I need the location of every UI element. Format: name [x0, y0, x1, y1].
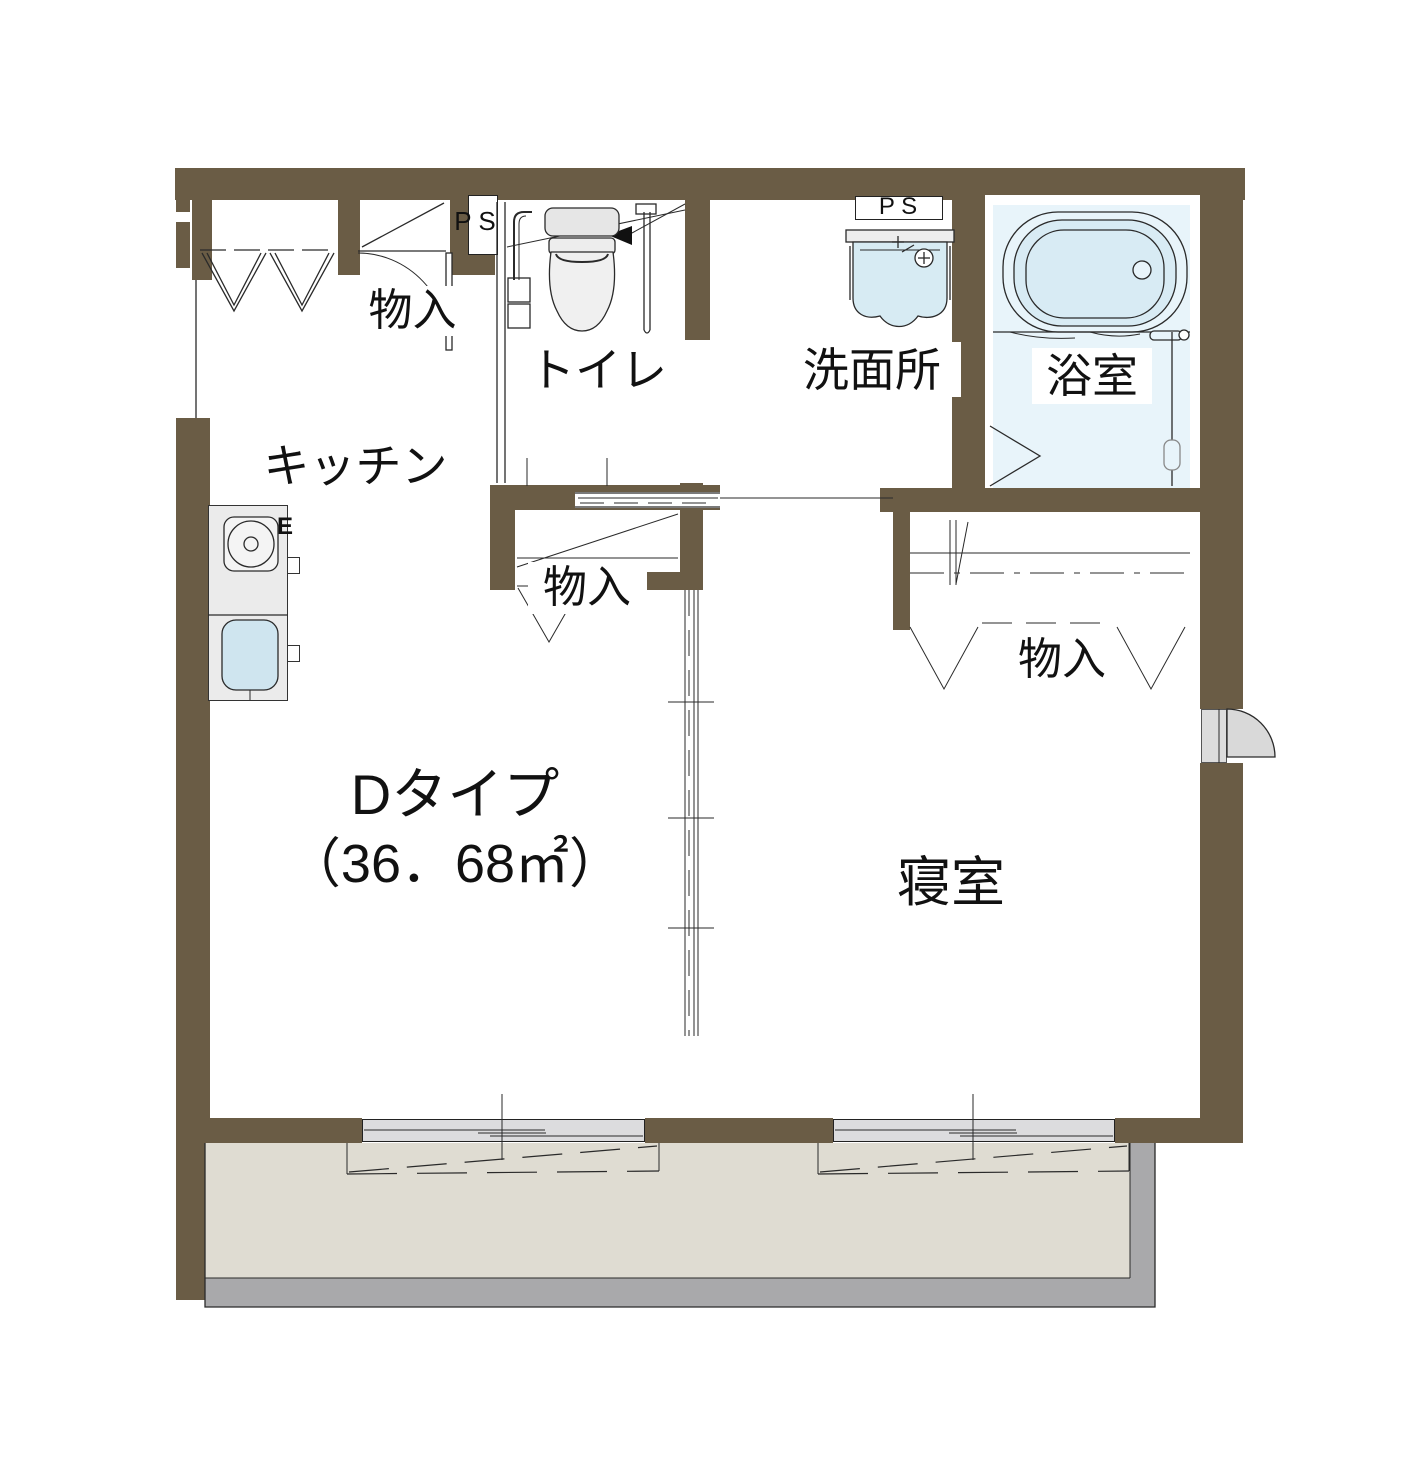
pipe-space-left-label: P S: [444, 206, 506, 236]
hall-sliding-track: [527, 458, 720, 508]
bathroom-folding-door: [990, 426, 1040, 486]
living-window-swing: [347, 1143, 659, 1174]
closet-label-entry: 物入: [360, 286, 465, 336]
room-label-bathroom: 浴室: [1032, 348, 1152, 404]
room-label-washroom: 洗面所: [783, 342, 961, 397]
floorplan-linework: [0, 0, 1422, 1473]
stove-label: E: [274, 514, 296, 540]
bedroom-entry-door: [1219, 709, 1275, 763]
room-label-kitchen: キッチン: [248, 440, 463, 492]
bedroom-window-lines: [835, 1094, 1113, 1160]
toilet-fixture: [545, 208, 619, 331]
floor-plan: Dタイプ （36．68㎡） キッチン トイレ 洗面所 浴室 寝室 物入 物入 物…: [0, 0, 1422, 1473]
unit-area-label: （36．68㎡）: [265, 834, 645, 894]
living-window-lines: [364, 1094, 643, 1160]
kitchen-sink: [222, 620, 278, 700]
closet-label-hall: 物入: [528, 562, 646, 614]
room-label-bedroom: 寝室: [876, 852, 1026, 914]
entry-closet-doors: [200, 250, 336, 311]
room-label-toilet: トイレ: [523, 342, 673, 397]
pipe-space-right-label: P S: [856, 195, 940, 219]
closet-label-bedroom: 物入: [1008, 634, 1116, 686]
unit-type-label: Dタイプ: [330, 764, 580, 826]
room-partition: [668, 590, 714, 1036]
washbasin: [846, 230, 954, 327]
bathtub: [1003, 212, 1187, 332]
